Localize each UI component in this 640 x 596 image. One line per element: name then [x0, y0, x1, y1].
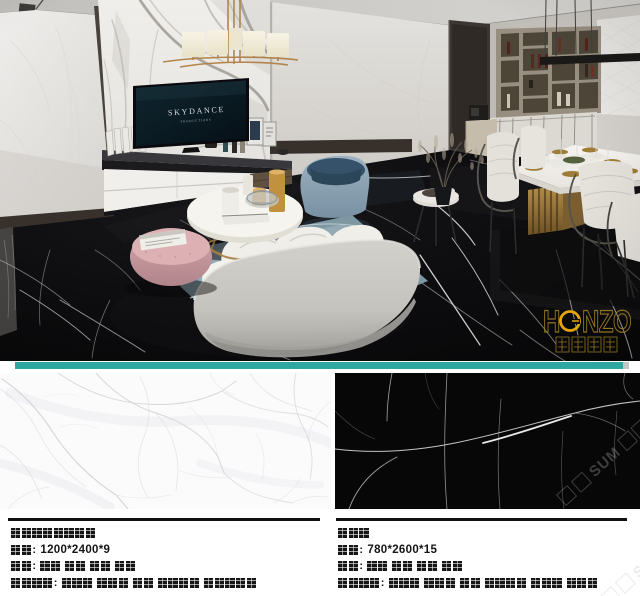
svg-text:H: H — [543, 304, 560, 339]
svg-text:NZO: NZO — [582, 304, 631, 339]
